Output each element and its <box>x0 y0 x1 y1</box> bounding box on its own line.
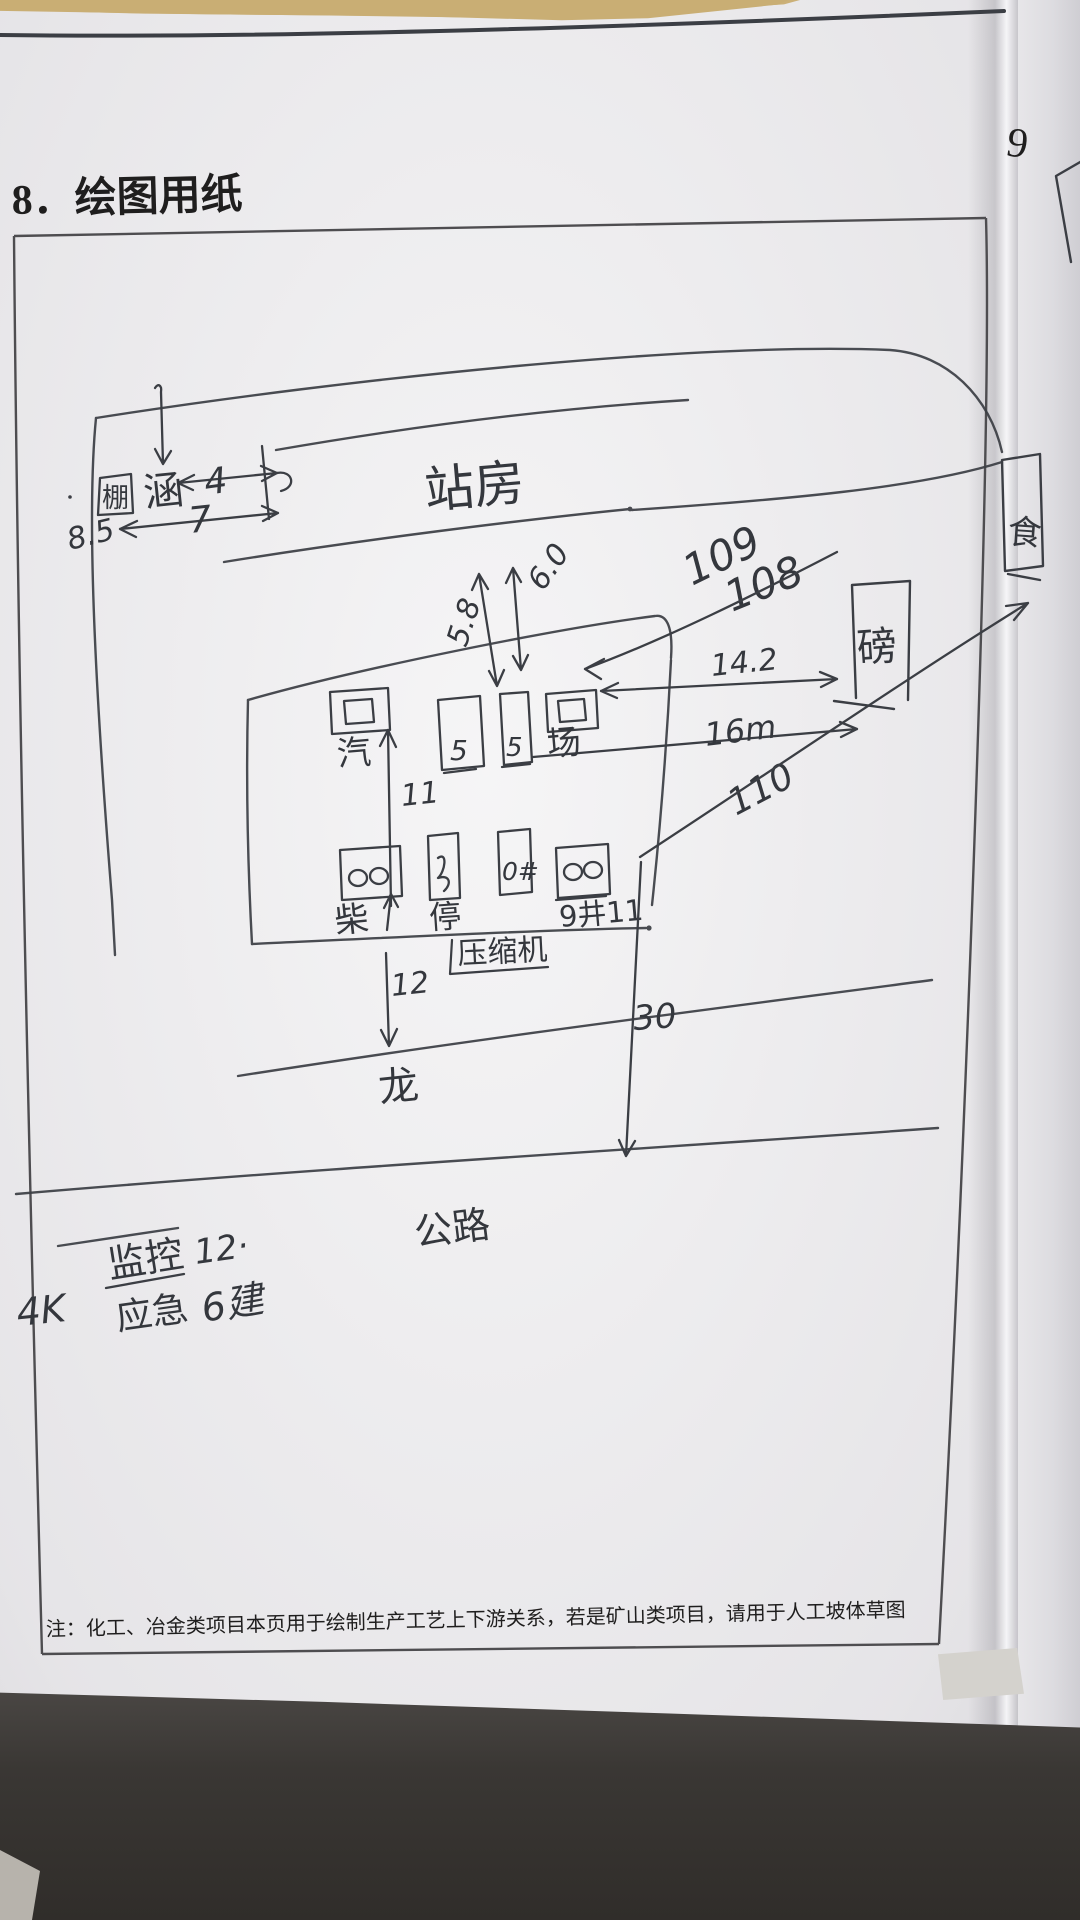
steam-box <box>330 688 390 734</box>
diagonal-arrows <box>585 552 1028 857</box>
parking-label: 停 <box>428 897 463 937</box>
dim-7: 7 <box>187 499 214 542</box>
next-page-number: 9 <box>1003 119 1031 168</box>
dim-16m: 16m <box>702 707 778 753</box>
camera-spec: 4K <box>14 1286 70 1335</box>
yard-label: 场 <box>545 722 582 765</box>
station-top-line <box>276 400 688 450</box>
station-label: 站房 <box>422 453 527 519</box>
inner-fence-left <box>247 700 252 944</box>
sketch-overlay: 8．绘图用纸 注：化工、冶金类项目本页用于绘制生产工艺上下游关系，若是矿山类项目… <box>0 0 1080 1920</box>
dike-label: 龙 <box>376 1062 421 1112</box>
diesel-label: 柴 <box>333 899 371 942</box>
road-line <box>16 1128 938 1194</box>
dim-30: 30 <box>632 996 678 1039</box>
dim-6-0: 6.0 <box>521 537 577 596</box>
top-crease-line <box>0 11 1004 36</box>
middle-boundary-line <box>238 980 932 1076</box>
monitor-count: 12· <box>192 1226 251 1273</box>
emergency-label: 应急 <box>114 1288 191 1339</box>
monitor-label: 监控 <box>105 1232 187 1287</box>
parking-box <box>428 833 460 900</box>
footnote: 注：化工、冶金类项目本页用于绘制生产工艺上下游关系，若是矿山类项目，请用于人工坡… <box>46 1598 906 1641</box>
road-label: 公路 <box>412 1202 493 1255</box>
culvert-label: 涵 <box>141 467 186 517</box>
sweep-to-canteen <box>632 462 1002 510</box>
dim-5-8: 5.8 <box>440 594 488 650</box>
tank-mark-b: 5 <box>506 733 523 763</box>
well-zero-label: 0# <box>502 857 539 886</box>
dim-11: 11 <box>399 775 441 814</box>
weighbridge-label: 磅 <box>855 623 898 672</box>
dim-14-2: 14.2 <box>709 642 779 684</box>
dim-4: 4 <box>202 460 230 504</box>
inner-fence-right <box>652 660 671 905</box>
elevation-110: 110 <box>721 755 801 823</box>
shed-label: 棚 <box>102 483 129 514</box>
canteen-label: 食 <box>1006 512 1043 554</box>
dim-12: 12 <box>389 965 431 1004</box>
well-nine-box <box>556 844 610 900</box>
outer-boundary-top <box>96 349 1002 452</box>
photographed-sketch-page: 8．绘图用纸 注：化工、冶金类项目本页用于绘制生产工艺上下游关系，若是矿山类项目… <box>0 0 1080 1920</box>
next-page-frame-corner <box>1056 161 1080 262</box>
dim-8-5: 8.5 <box>63 512 118 558</box>
page-title: 8．绘图用纸 <box>11 171 243 224</box>
emergency-count: 6建 <box>198 1276 271 1331</box>
steam-label: 汽 <box>335 732 372 775</box>
tank-mark-a: 5 <box>450 734 468 767</box>
compressor-label: 压缩机 <box>457 932 549 972</box>
